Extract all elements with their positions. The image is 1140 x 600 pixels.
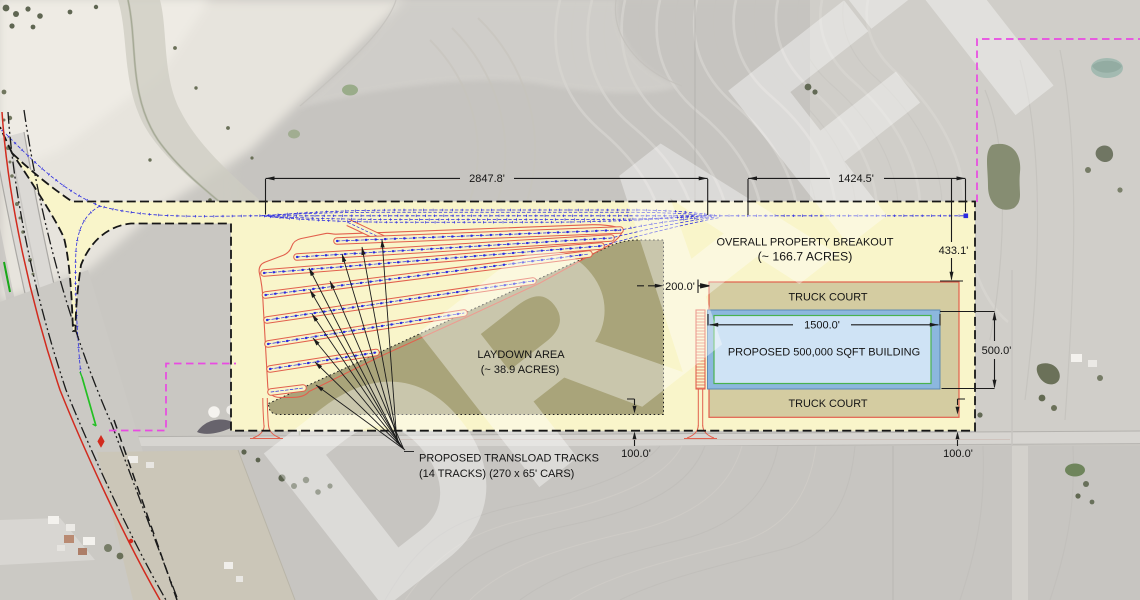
svg-text:PROPOSED TRANSLOAD TRACKS: PROPOSED TRANSLOAD TRACKS	[419, 453, 599, 465]
svg-text:2847.8': 2847.8'	[469, 173, 505, 185]
svg-text:LAYDOWN AREA: LAYDOWN AREA	[477, 349, 565, 361]
svg-text:(~ 166.7 ACRES): (~ 166.7 ACRES)	[758, 250, 853, 264]
svg-text:433.1': 433.1'	[939, 245, 969, 257]
svg-text:200.0': 200.0'	[665, 281, 695, 293]
svg-text:1424.5': 1424.5'	[838, 173, 874, 185]
svg-text:100.0': 100.0'	[621, 448, 651, 460]
svg-text:PROPOSED 500,000 SQFT BUILDING: PROPOSED 500,000 SQFT BUILDING	[728, 347, 920, 359]
svg-text:100.0': 100.0'	[943, 448, 973, 460]
svg-text:(~ 38.9 ACRES): (~ 38.9 ACRES)	[481, 364, 560, 376]
svg-text:TRUCK COURT: TRUCK COURT	[788, 292, 867, 304]
svg-text:1500.0': 1500.0'	[804, 320, 840, 332]
svg-text:(14 TRACKS) (270 x 65' CARS): (14 TRACKS) (270 x 65' CARS)	[419, 468, 574, 480]
svg-text:500.0': 500.0'	[982, 345, 1012, 357]
svg-text:TRUCK COURT: TRUCK COURT	[788, 398, 867, 410]
svg-text:OVERALL PROPERTY BREAKOUT: OVERALL PROPERTY BREAKOUT	[716, 237, 893, 249]
